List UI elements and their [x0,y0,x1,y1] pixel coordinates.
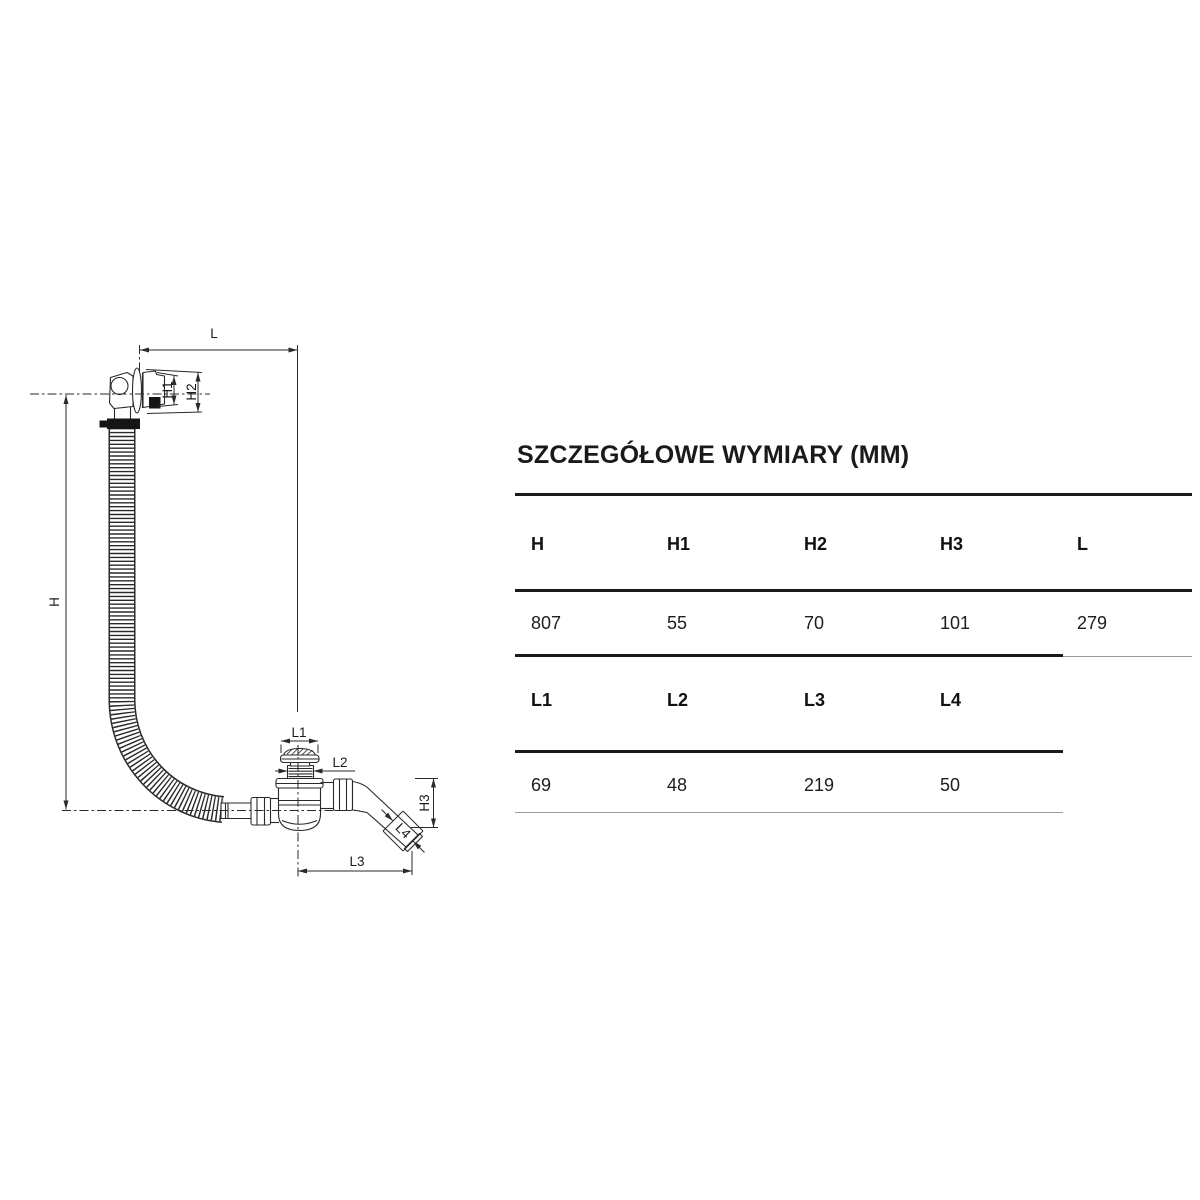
dim-label-l3: L3 [349,854,364,869]
value-h2: 70 [804,613,824,634]
col-header-h3: H3 [940,534,963,555]
value-l2: 48 [667,775,687,796]
col-header-l: L [1077,534,1088,555]
col-header-l4: L4 [940,690,961,711]
page-title: SZCZEGÓŁOWE WYMIARY (MM) [517,441,909,470]
dim-label-l: L [210,326,218,341]
col-header-h: H [531,534,544,555]
dim-label-l1: L1 [291,725,306,740]
dim-label-h1: H1 [160,381,175,398]
value-l4: 50 [940,775,960,796]
value-l: 279 [1077,613,1107,634]
corrugated-hose [122,428,223,810]
dim-label-l2: L2 [332,755,347,770]
value-h1: 55 [667,613,687,634]
product-dimensions-sheet: L H H1 H2 H3 L1 L2 L3 L4 SZCZEGÓŁOWE WYM… [0,0,1200,1200]
table-rule-header2 [515,750,1063,753]
table-rule-bottom [515,812,1063,813]
overflow-assembly [100,368,165,429]
dim-label-h: H [47,597,62,607]
value-l3: 219 [804,775,834,796]
col-header-l2: L2 [667,690,688,711]
value-h: 807 [531,613,561,634]
dimension-labels: L H H1 H2 H3 L1 L2 L3 L4 [47,326,432,869]
hose-end-fitting [221,798,271,826]
col-header-l3: L3 [804,690,825,711]
col-header-h1: H1 [667,534,690,555]
table-rule-mid-thin [1063,656,1192,657]
value-h3: 101 [940,613,970,634]
col-header-h2: H2 [804,534,827,555]
dim-label-h3: H3 [417,794,432,811]
table-rule-header1 [515,589,1192,592]
table-rule-mid-thick [515,654,1063,657]
table-rule-top [515,493,1192,496]
technical-diagram: L H H1 H2 H3 L1 L2 L3 L4 [0,0,1200,1200]
value-l1: 69 [531,775,551,796]
col-header-l1: L1 [531,690,552,711]
dim-label-h2: H2 [184,383,199,400]
